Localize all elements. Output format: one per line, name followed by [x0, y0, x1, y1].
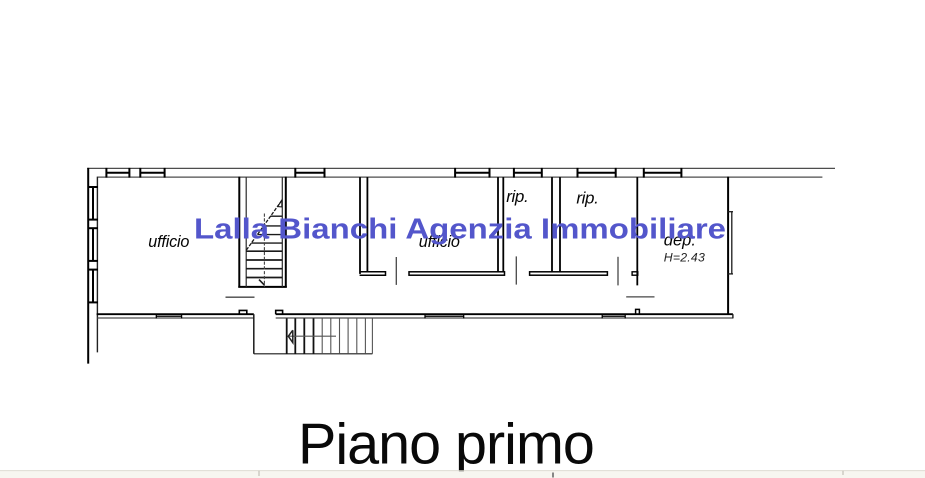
svg-text:Piano primo: Piano primo: [298, 413, 594, 477]
svg-text:rip.: rip.: [576, 188, 598, 207]
svg-text:H=2.43: H=2.43: [664, 250, 705, 264]
svg-text:rip.: rip.: [506, 187, 528, 206]
svg-text:ufficio: ufficio: [148, 233, 189, 251]
svg-text:Lalla Bianchi Agenzia Immobili: Lalla Bianchi Agenzia Immobiliare: [194, 214, 726, 246]
